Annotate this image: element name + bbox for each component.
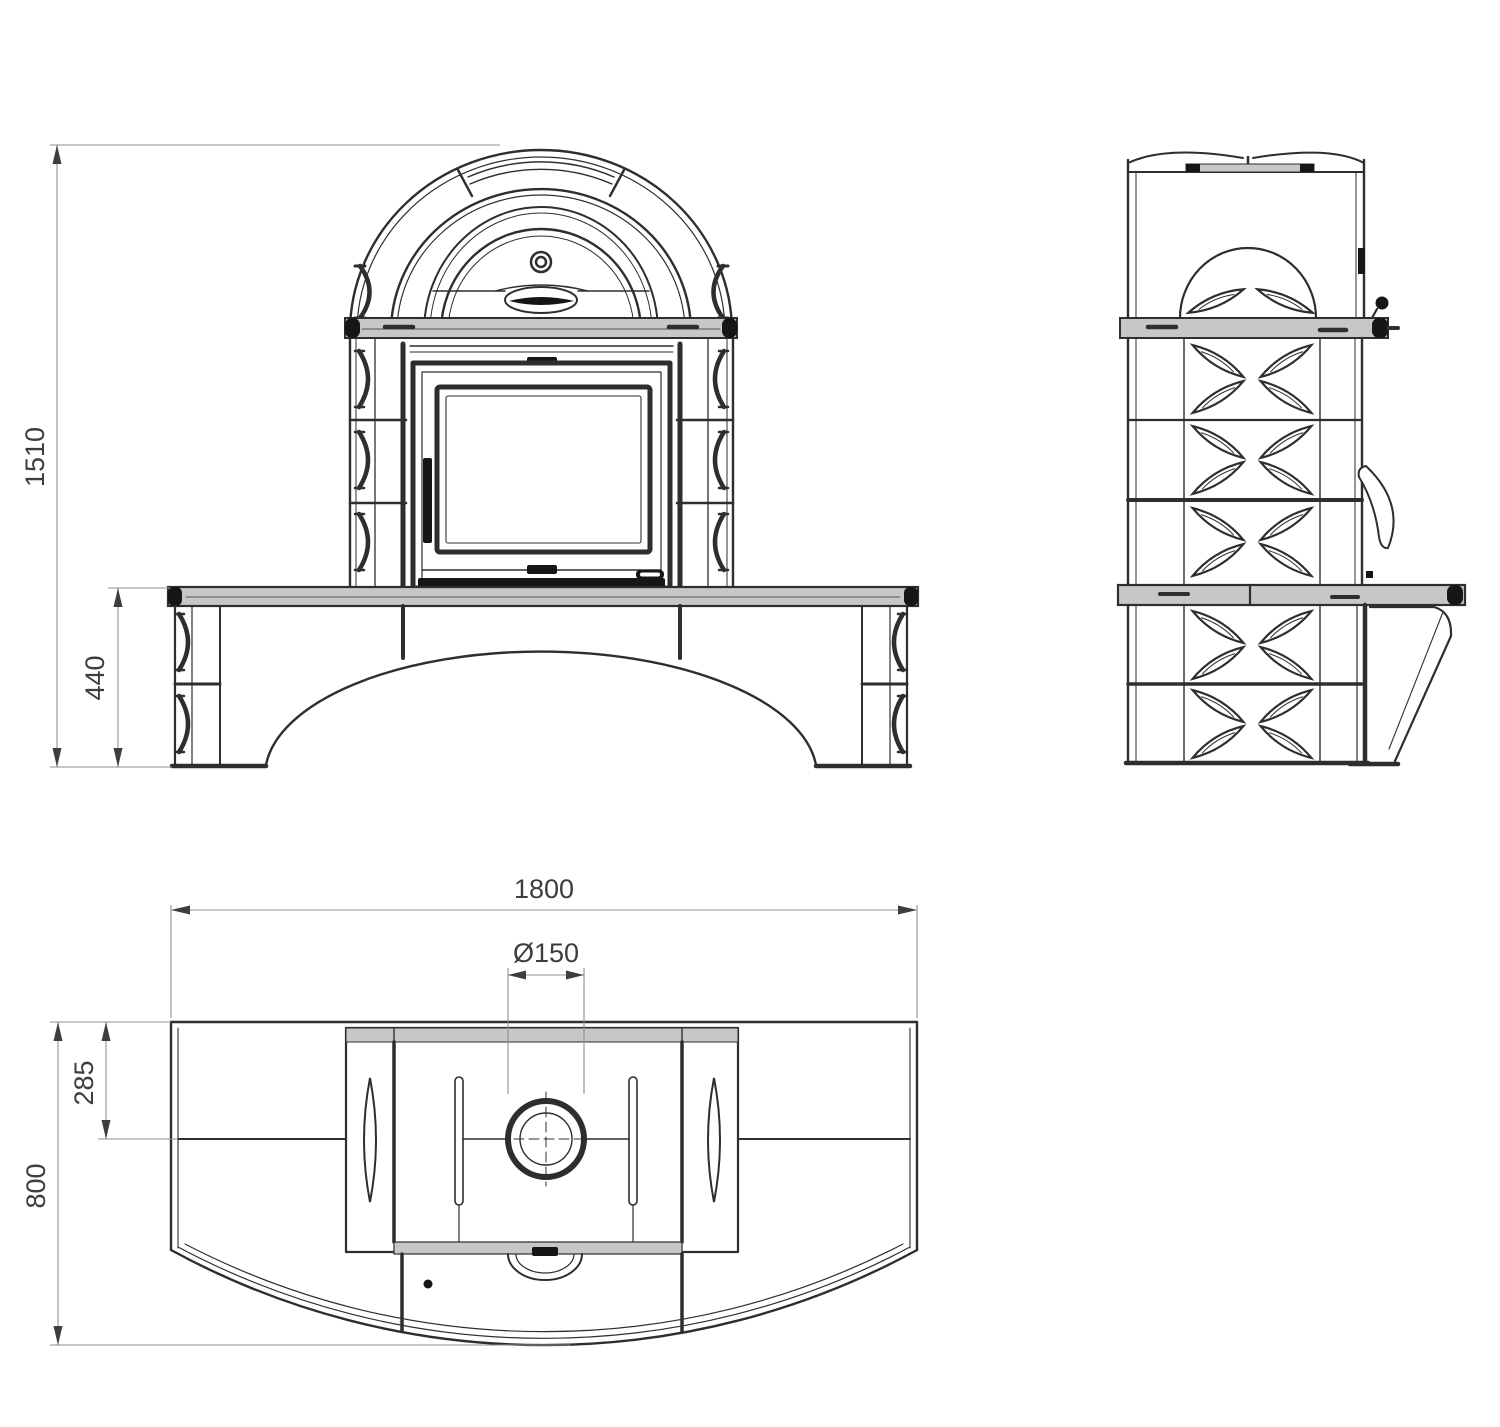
- plan-flue-outlet: [499, 1092, 593, 1186]
- dim-flue-diameter: Ø150: [508, 938, 584, 1094]
- side-top: [1128, 153, 1364, 172]
- side-lower-tiles: [1126, 605, 1368, 763]
- dim-plan-depth-label: 800: [21, 1163, 51, 1208]
- front-oven-handle: [505, 287, 577, 313]
- dim-flue-offset: 285: [69, 1022, 178, 1139]
- plan-bench-outline: [171, 1022, 917, 1345]
- side-upper-body: [1128, 160, 1365, 318]
- dim-bench-height-label: 440: [80, 655, 110, 700]
- front-bench: [168, 587, 918, 766]
- side-door-handle: [1359, 466, 1394, 578]
- front-right-column: [677, 338, 733, 588]
- front-view: 1510 440: [20, 145, 918, 767]
- dim-front-height-label: 1510: [20, 427, 50, 487]
- plan-view: 1800 Ø150 285 800: [21, 874, 917, 1345]
- front-firebox-door: [410, 346, 673, 588]
- side-upper-tiles: [1128, 338, 1362, 585]
- dim-plan-width-label: 1800: [514, 874, 574, 904]
- side-bench: [1118, 585, 1465, 764]
- dim-plan-depth: 800: [21, 1022, 570, 1345]
- dim-flue-offset-label: 285: [69, 1060, 99, 1105]
- dim-bench-height: 440: [80, 588, 170, 767]
- front-door-hinge: [423, 458, 432, 543]
- front-shelf-band: [345, 318, 737, 338]
- drawing-page: 1510 440: [0, 0, 1500, 1427]
- side-view: [1118, 153, 1465, 764]
- plan-stove-top: [346, 1028, 738, 1332]
- dim-flue-diameter-label: Ø150: [513, 938, 579, 968]
- front-arch: [350, 150, 732, 332]
- front-left-column: [350, 338, 406, 588]
- stove-technical-drawing: 1510 440: [0, 0, 1500, 1427]
- side-bench-support: [1370, 607, 1451, 761]
- side-damper-knob-icon: [1376, 297, 1389, 310]
- front-damper-knob-icon: [531, 252, 551, 272]
